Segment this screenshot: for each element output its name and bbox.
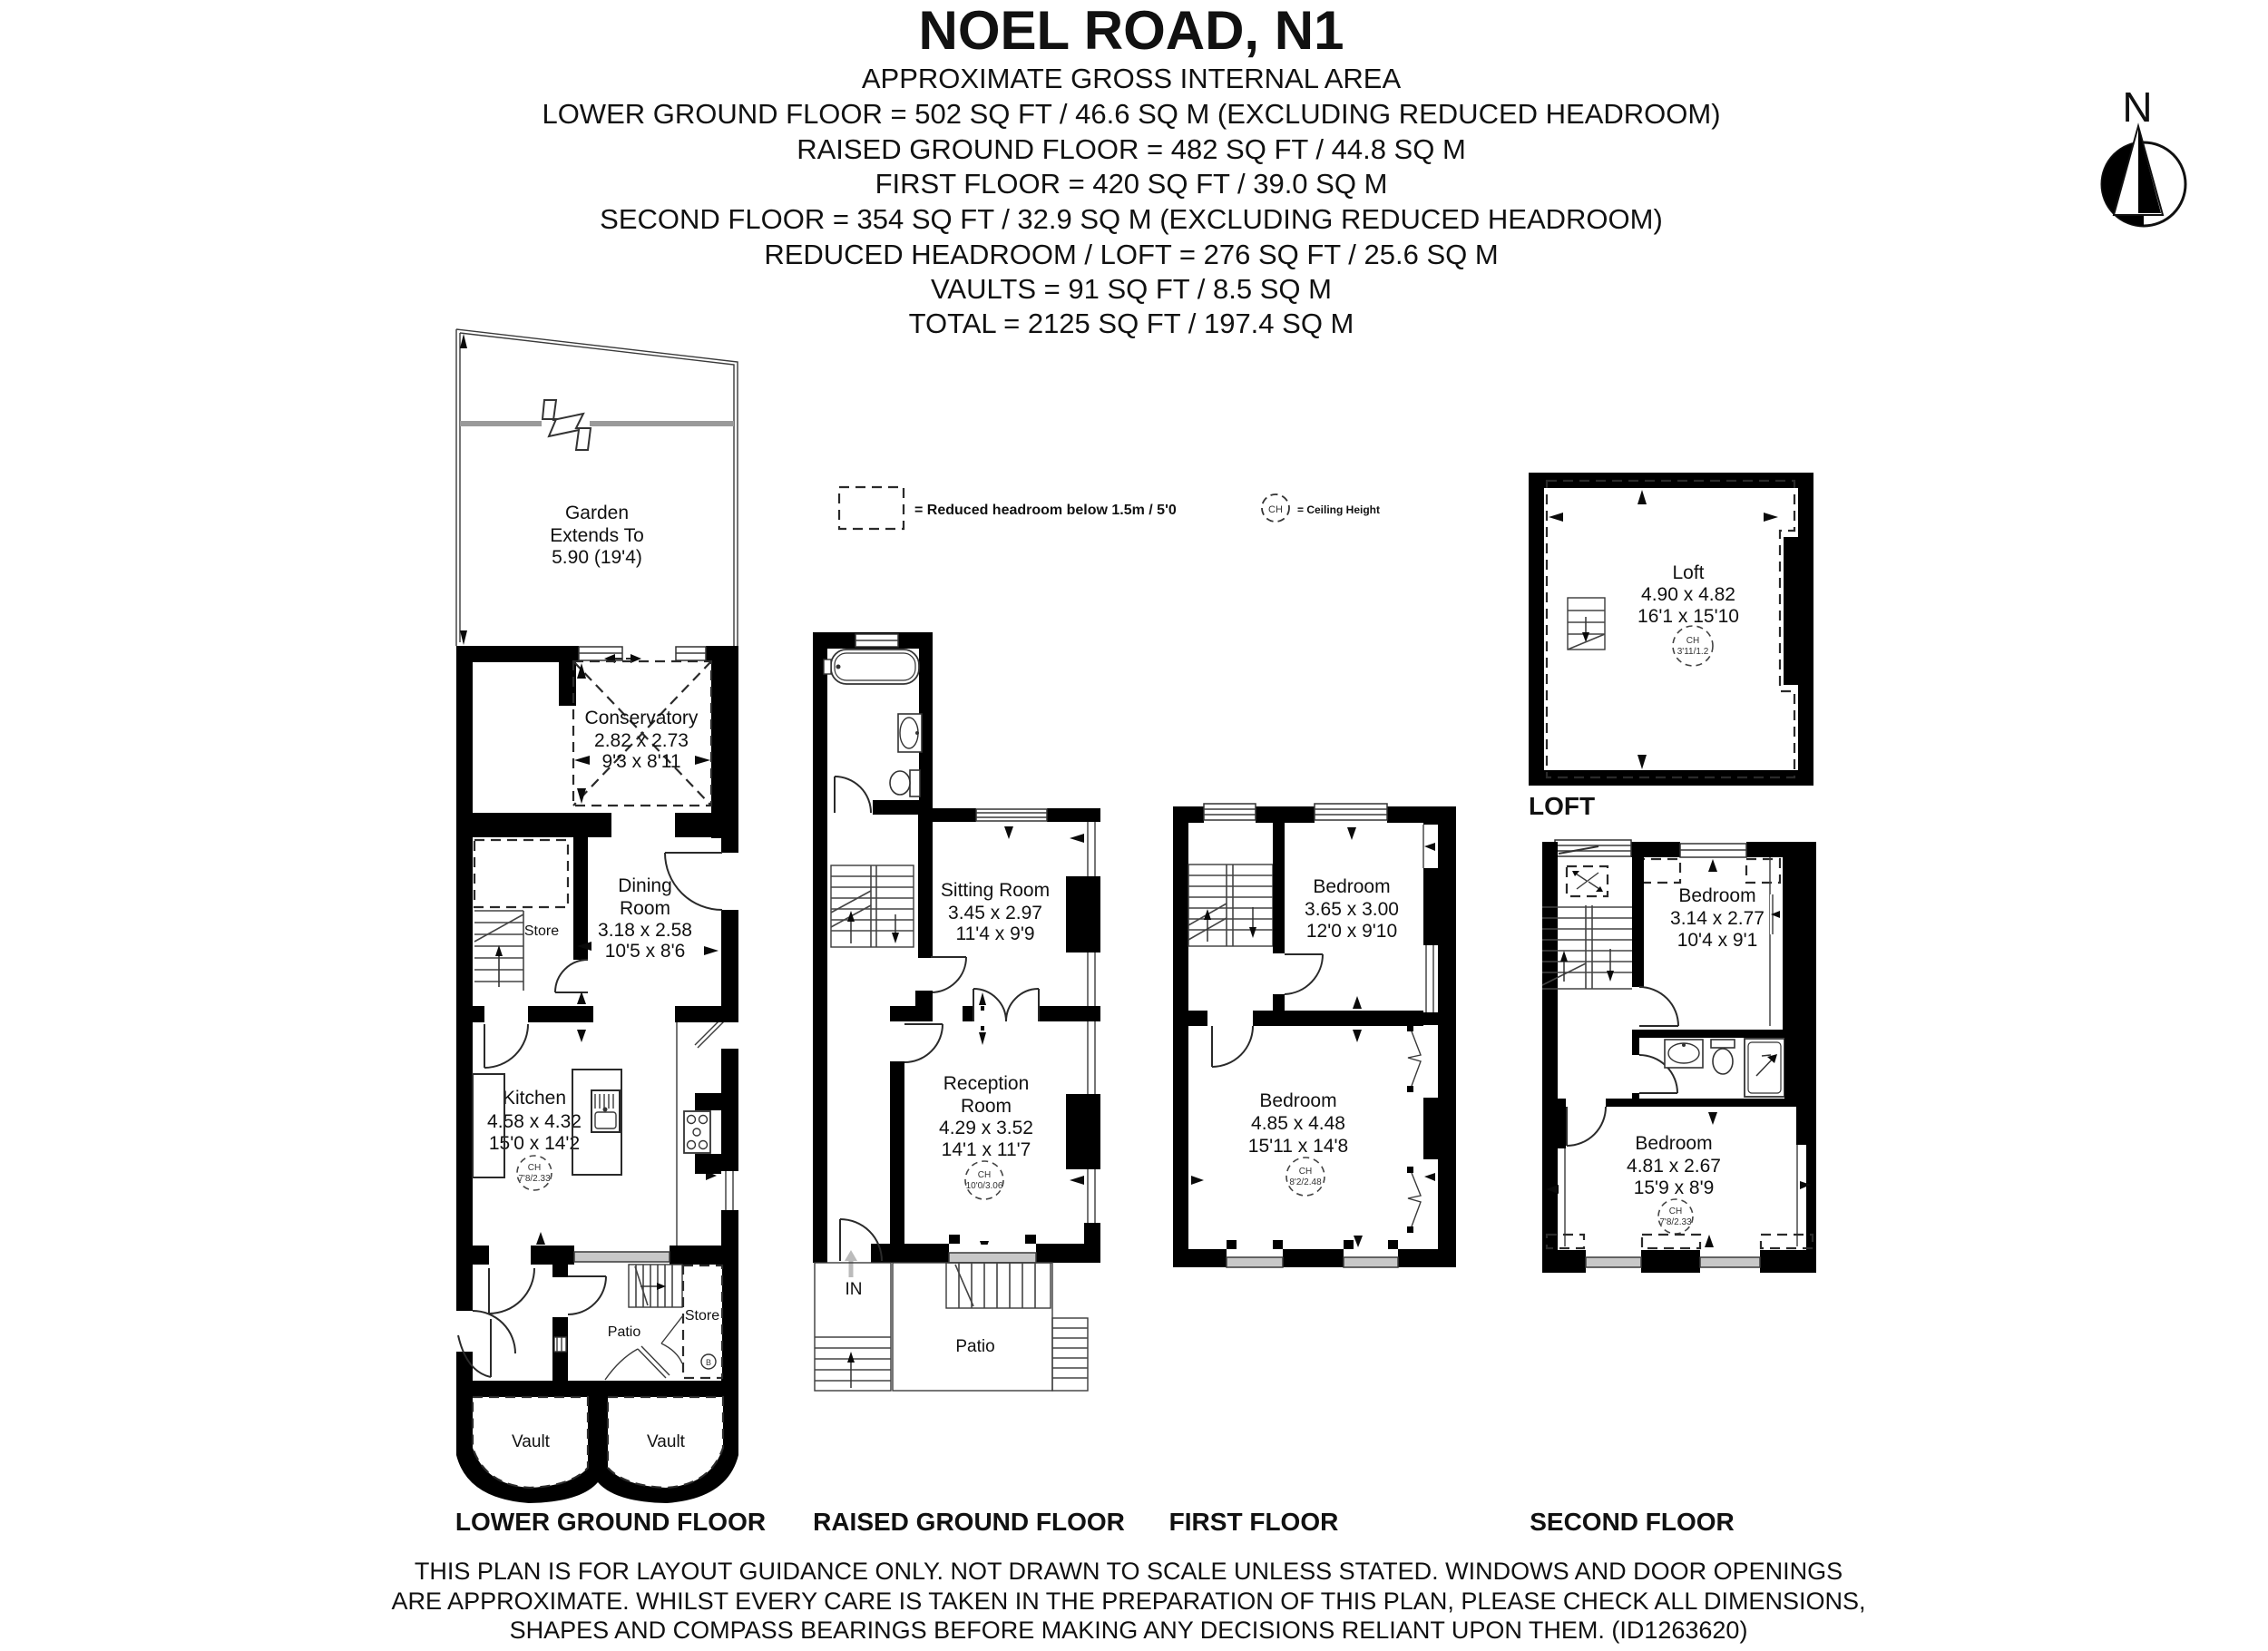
svg-text:10'4 x 9'1: 10'4 x 9'1 — [1677, 930, 1758, 951]
svg-text:Bedroom: Bedroom — [1678, 885, 1755, 906]
svg-text:4.81 x 2.67: 4.81 x 2.67 — [1627, 1156, 1721, 1177]
svg-text:CH: CH — [528, 1163, 541, 1173]
svg-text:Loft: Loft — [1672, 562, 1704, 583]
svg-text:8'2/2.48: 8'2/2.48 — [1289, 1177, 1322, 1187]
svg-text:Sitting Room: Sitting Room — [941, 880, 1050, 901]
svg-text:10'0/3.06: 10'0/3.06 — [966, 1181, 1003, 1191]
svg-text:N: N — [2122, 83, 2152, 131]
svg-text:3'11/1.2: 3'11/1.2 — [1677, 647, 1709, 657]
svg-text:ARE APPROXIMATE. WHILST EVERY: ARE APPROXIMATE. WHILST EVERY CARE IS TA… — [392, 1587, 1866, 1615]
svg-text:12'0 x 9'10: 12'0 x 9'10 — [1306, 921, 1397, 942]
svg-text:REDUCED HEADROOM / LOFT = 276: REDUCED HEADROOM / LOFT = 276 SQ FT / 25… — [764, 239, 1498, 270]
svg-text:SECOND FLOOR = 354 SQ FT / 32.: SECOND FLOOR = 354 SQ FT / 32.9 SQ M (EX… — [600, 203, 1663, 235]
svg-text:THIS PLAN IS FOR LAYOUT GUIDAN: THIS PLAN IS FOR LAYOUT GUIDANCE ONLY. N… — [415, 1558, 1843, 1585]
svg-text:3.45 x 2.97: 3.45 x 2.97 — [948, 903, 1042, 923]
svg-text:4.29 x 3.52: 4.29 x 3.52 — [939, 1118, 1033, 1138]
svg-text:9'3 x 8'11: 9'3 x 8'11 — [601, 751, 680, 772]
svg-text:Bedroom: Bedroom — [1259, 1090, 1336, 1111]
svg-text:Dining: Dining — [618, 875, 672, 896]
svg-text:CH: CH — [1299, 1167, 1312, 1177]
svg-text:Store: Store — [524, 923, 559, 939]
svg-text:15'11 x 14'8: 15'11 x 14'8 — [1248, 1136, 1348, 1157]
svg-text:CH: CH — [1686, 636, 1699, 646]
svg-text:LOFT: LOFT — [1529, 792, 1595, 820]
svg-text:15'0 x 14'2: 15'0 x 14'2 — [489, 1133, 580, 1154]
svg-text:16'1 x 15'10: 16'1 x 15'10 — [1637, 606, 1739, 627]
svg-text:Vault: Vault — [512, 1432, 551, 1451]
svg-text:4.58 x 4.32: 4.58 x 4.32 — [487, 1111, 582, 1132]
svg-text:15'9 x 8'9: 15'9 x 8'9 — [1634, 1177, 1715, 1198]
svg-text:CH: CH — [1669, 1206, 1682, 1216]
svg-text:4.90 x 4.82: 4.90 x 4.82 — [1641, 584, 1735, 605]
svg-text:Vault: Vault — [647, 1432, 686, 1451]
svg-text:TOTAL = 2125 SQ FT / 197.4 SQ: TOTAL = 2125 SQ FT / 197.4 SQ M — [909, 308, 1354, 339]
svg-text:4.85 x 4.48: 4.85 x 4.48 — [1251, 1113, 1345, 1134]
svg-text:3.65 x 3.00: 3.65 x 3.00 — [1305, 899, 1399, 920]
svg-text:LOWER GROUND FLOOR: LOWER GROUND FLOOR — [455, 1508, 766, 1536]
svg-text:VAULTS = 91 SQ FT / 8.5 SQ M: VAULTS = 91 SQ FT / 8.5 SQ M — [931, 273, 1332, 305]
svg-text:Patio: Patio — [608, 1324, 641, 1340]
svg-text:Patio: Patio — [955, 1337, 994, 1356]
svg-text:SECOND FLOOR: SECOND FLOOR — [1530, 1508, 1735, 1536]
svg-text:FIRST FLOOR = 420 SQ FT / 39.0: FIRST FLOOR = 420 SQ FT / 39.0 SQ M — [875, 168, 1388, 200]
svg-text:Bedroom: Bedroom — [1313, 876, 1390, 897]
svg-text:Extends To: Extends To — [550, 525, 644, 546]
svg-text:IN: IN — [846, 1280, 863, 1299]
svg-text:7'8/2.33: 7'8/2.33 — [518, 1174, 551, 1184]
svg-text:Reception: Reception — [943, 1073, 1030, 1094]
svg-text:3.14 x 2.77: 3.14 x 2.77 — [1670, 908, 1765, 929]
svg-text:NOEL ROAD, N1: NOEL ROAD, N1 — [919, 0, 1344, 61]
svg-text:CH: CH — [1268, 504, 1283, 515]
svg-text:Bedroom: Bedroom — [1635, 1133, 1712, 1154]
svg-text:5.90 (19'4): 5.90 (19'4) — [552, 547, 642, 568]
svg-text:Room: Room — [620, 898, 670, 919]
svg-text:RAISED GROUND FLOOR: RAISED GROUND FLOOR — [813, 1508, 1125, 1536]
svg-text:2.82 x 2.73: 2.82 x 2.73 — [594, 730, 689, 751]
svg-text:FIRST FLOOR: FIRST FLOOR — [1169, 1508, 1339, 1536]
svg-text:Conservatory: Conservatory — [585, 708, 699, 728]
svg-text:3.18 x 2.58: 3.18 x 2.58 — [598, 920, 692, 941]
svg-text:= Ceiling Height: = Ceiling Height — [1297, 503, 1380, 516]
svg-text:Room: Room — [961, 1096, 1012, 1117]
svg-text:SHAPES AND COMPASS BEARINGS BE: SHAPES AND COMPASS BEARINGS BEFORE MAKIN… — [510, 1617, 1748, 1644]
svg-text:10'5 x 8'6: 10'5 x 8'6 — [605, 941, 686, 962]
svg-text:= Reduced headroom below 1.5m: = Reduced headroom below 1.5m / 5'0 — [914, 503, 1177, 518]
svg-text:B: B — [706, 1358, 711, 1367]
svg-text:11'4 x 9'9: 11'4 x 9'9 — [955, 923, 1034, 944]
svg-text:Kitchen: Kitchen — [503, 1088, 566, 1109]
svg-text:7'8/2.33: 7'8/2.33 — [1659, 1217, 1692, 1227]
svg-text:Garden: Garden — [565, 503, 629, 523]
svg-text:APPROXIMATE GROSS INTERNAL ARE: APPROXIMATE GROSS INTERNAL AREA — [862, 63, 1402, 94]
svg-text:LOWER GROUND FLOOR = 502 SQ FT: LOWER GROUND FLOOR = 502 SQ FT / 46.6 SQ… — [542, 98, 1720, 130]
svg-text:Store: Store — [685, 1308, 719, 1324]
svg-text:CH: CH — [978, 1170, 991, 1180]
svg-text:RAISED GROUND FLOOR = 482 SQ F: RAISED GROUND FLOOR = 482 SQ FT / 44.8 S… — [797, 133, 1466, 165]
svg-text:14'1 x 11'7: 14'1 x 11'7 — [942, 1139, 1031, 1160]
